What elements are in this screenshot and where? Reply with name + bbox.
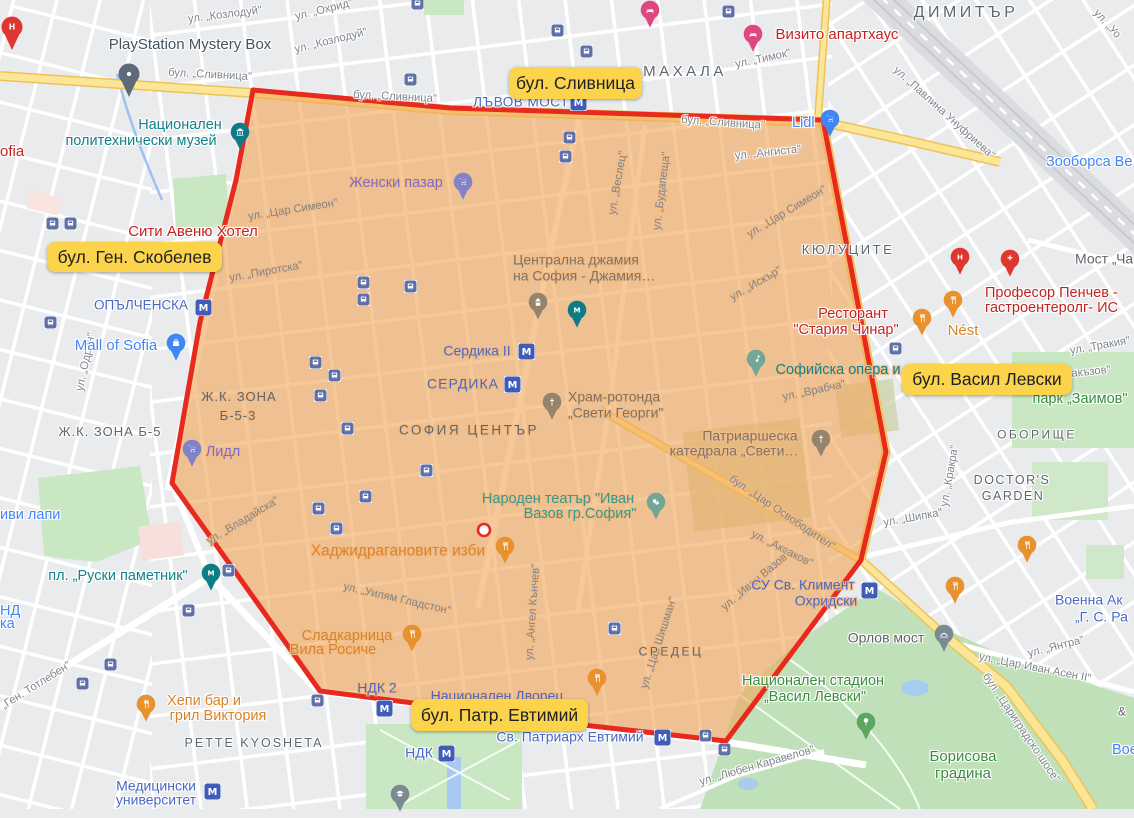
map-label[interactable]: ка [0, 617, 15, 633]
map-label[interactable]: ofia [0, 144, 24, 161]
map-label[interactable]: Мост „Ча [1075, 251, 1133, 266]
station-su-sv-kliment[interactable]: СУ Св. Климент [751, 577, 854, 592]
tram-icon[interactable] [404, 73, 417, 91]
tram-icon[interactable] [357, 293, 370, 311]
tram-icon[interactable] [411, 0, 424, 15]
metro-icon[interactable] [438, 745, 455, 767]
map-label: GARDEN [982, 490, 1044, 504]
bridge-pin[interactable] [933, 623, 955, 658]
metro-icon[interactable] [376, 700, 393, 722]
map-label[interactable]: Вое [1112, 743, 1134, 759]
poi-borisova-gradina[interactable]: Борисова [929, 749, 996, 766]
street-overlay-label-vasil-levski: бул. Васил Левски [902, 364, 1072, 395]
map-label[interactable]: Военна Ак [1055, 592, 1123, 607]
map-label: СРЕДЕЦ [639, 645, 704, 658]
tram-icon[interactable] [309, 356, 322, 374]
metro-icon[interactable] [861, 582, 878, 604]
tram-icon[interactable] [357, 276, 370, 294]
map-label[interactable]: Вила Росиче [290, 643, 376, 659]
playstation-pin[interactable] [116, 62, 142, 103]
tram-icon[interactable] [341, 422, 354, 440]
tram-icon[interactable] [580, 45, 593, 63]
food-pin[interactable] [494, 535, 516, 570]
map-label[interactable]: „Свети Георги" [568, 405, 663, 420]
map-label[interactable]: „Г. С. Ра [1075, 609, 1128, 624]
music-pin[interactable] [745, 348, 767, 383]
poi-tsentralna-dzhamiya[interactable]: Централна джамия [513, 252, 639, 267]
map-label: & [1118, 705, 1126, 718]
map-label[interactable]: университет [116, 792, 196, 807]
metro-pin-pin[interactable] [566, 299, 588, 334]
tram-icon[interactable] [551, 24, 564, 42]
poi-stariya-chinar[interactable]: Ресторант [818, 307, 888, 323]
map-canvas[interactable]: М H ул. „Козлодуй"ул. „Охрид"ул. „Козлод… [0, 0, 1134, 809]
tram-icon[interactable] [182, 604, 195, 622]
map-label[interactable]: катедрала „Свети… [670, 443, 799, 458]
map-label[interactable]: Зооборса Ве [1046, 155, 1132, 171]
tram-icon[interactable] [889, 342, 902, 360]
tram-icon[interactable] [222, 564, 235, 582]
tram-icon[interactable] [76, 677, 89, 695]
metro-icon[interactable] [654, 729, 671, 751]
street-overlay-label-slivnitsa: бул. Сливница [509, 67, 642, 99]
map-label[interactable]: Вазов гр.София" [524, 507, 637, 523]
clinic-pin[interactable] [999, 248, 1021, 283]
tram-icon[interactable] [420, 464, 433, 482]
poi-vizito-aparthaus[interactable]: Визито апартхаус [776, 27, 899, 44]
map-label: ОБОРИЩЕ [997, 428, 1077, 441]
tram-icon[interactable] [608, 622, 621, 640]
tram-icon[interactable] [559, 150, 572, 168]
tram-icon[interactable] [311, 694, 324, 712]
tram-icon[interactable] [328, 369, 341, 387]
poi-lidl-bg[interactable]: Лидл [206, 445, 241, 461]
metro-icon[interactable] [195, 299, 212, 321]
map-label: СОФИЯ ЦЕНТЪР [399, 424, 539, 439]
poi-hram-rotonda[interactable]: Храм-ротонда [568, 389, 660, 404]
food-pin[interactable] [944, 575, 966, 610]
station-ndk-2[interactable]: НДК 2 [357, 680, 396, 695]
tram-icon[interactable] [722, 5, 735, 23]
map-label[interactable]: градина [935, 766, 991, 783]
cart-purple-pin[interactable] [452, 171, 474, 206]
poi-hadzhidraganovite-izbi[interactable]: Хаджидрагановите изби [311, 542, 485, 559]
tram-icon[interactable] [64, 217, 77, 235]
metro-icon[interactable] [504, 376, 521, 398]
poi-playstation-mystery-box[interactable]: PlayStation Mystery Box [109, 37, 272, 54]
metro-icon[interactable] [518, 343, 535, 365]
poi-nest[interactable]: Nést [948, 323, 979, 340]
map-label[interactable]: "Стария Чинар" [793, 323, 898, 339]
metro-pin-pin[interactable] [200, 562, 222, 597]
museum-pin[interactable] [229, 121, 251, 156]
tram-icon[interactable] [404, 280, 417, 298]
station-ndk[interactable]: НДК [405, 745, 433, 760]
church-pin[interactable] [541, 391, 563, 426]
station-serdika-2[interactable]: Сердика II [443, 343, 510, 358]
station-serdika[interactable]: СЕРДИКА [427, 376, 499, 391]
food-pin[interactable] [135, 693, 157, 728]
food-pin[interactable] [942, 289, 964, 324]
hotel-pin[interactable] [639, 0, 661, 34]
tram-icon[interactable] [330, 522, 343, 540]
tram-icon[interactable] [44, 316, 57, 334]
poi-politehnicheski-muzey[interactable]: Национален [138, 118, 222, 134]
tram-icon[interactable] [314, 389, 327, 407]
poi-sofiyska-opera[interactable]: Софийска опера и [776, 363, 901, 379]
mosque-pin[interactable] [527, 291, 549, 326]
food-pin[interactable] [1016, 534, 1038, 569]
poi-city-avenue-hotel[interactable]: Сити Авеню Хотел [128, 224, 258, 241]
cart-blue-pin[interactable] [819, 108, 841, 143]
tram-icon[interactable] [718, 743, 731, 761]
poi-lidl-en[interactable]: Lidl [792, 116, 815, 132]
map-label: PETTE KYOSHETA [185, 737, 324, 751]
bag-pin[interactable] [165, 332, 187, 367]
food-pin[interactable] [911, 307, 933, 342]
poi-mall-of-sofia[interactable]: Mall of Sofia [75, 338, 158, 355]
map-label[interactable]: иви лапи [0, 508, 60, 524]
poi-zhenski-pazar[interactable]: Женски пазар [349, 176, 443, 192]
metro-icon[interactable] [204, 783, 221, 805]
tram-icon[interactable] [104, 658, 117, 676]
map-label: МАХАЛА [643, 64, 727, 81]
map-label: КЮЛУЦИТЕ [802, 243, 894, 257]
map-label[interactable]: Охридски [795, 593, 857, 608]
tram-icon[interactable] [312, 502, 325, 520]
tram-icon[interactable] [46, 217, 59, 235]
church-pin[interactable] [810, 428, 832, 463]
map-label: ДИМИТЪР [914, 4, 1019, 22]
hospital-pin[interactable] [949, 246, 971, 281]
map-label[interactable]: грил Виктория [170, 709, 267, 725]
location-dot[interactable] [475, 521, 493, 544]
poi-stadion-vasil-levski[interactable]: Национален стадион [742, 674, 884, 690]
park-pin[interactable] [855, 711, 877, 746]
poi-orlov-most[interactable]: Орлов мост [848, 630, 924, 645]
food-pin[interactable] [586, 667, 608, 702]
map-label[interactable]: „Васил Левски" [764, 690, 866, 706]
cart-purple-pin[interactable] [181, 438, 203, 473]
map-label[interactable]: гастроентеролг- ИС [985, 301, 1118, 317]
street-overlay-label-skobelev: бул. Ген. Скобелев [47, 242, 222, 272]
hospital-balloon-pin[interactable] [0, 15, 25, 56]
school-pin[interactable] [389, 783, 411, 818]
street-overlay-label-patr-evtimiy: бул. Патр. Евтимий [411, 699, 588, 731]
map-label: Б-5-3 [220, 409, 257, 423]
tram-icon[interactable] [563, 131, 576, 149]
station-opalchenska[interactable]: ОПЪЛЧЕНСКА [94, 299, 188, 314]
food-pin[interactable] [401, 623, 423, 658]
map-label: Ж.К. ЗОНА [201, 390, 276, 404]
tram-icon[interactable] [359, 490, 372, 508]
theater-pin[interactable] [645, 491, 667, 526]
map-label[interactable]: на София - Джамия… [513, 268, 655, 283]
map-label[interactable]: политехнически музей [65, 134, 216, 150]
station-sv-patriarh-evtimiy[interactable]: Св. Патриарх Евтимий [496, 729, 643, 744]
map-label: Ж.К. ЗОНА Б-5 [59, 425, 162, 439]
tram-icon[interactable] [699, 729, 712, 747]
map-label: DOCTOR'S [974, 474, 1051, 488]
poi-ruski-pametnik[interactable]: пл. „Руски паметник" [48, 569, 187, 585]
